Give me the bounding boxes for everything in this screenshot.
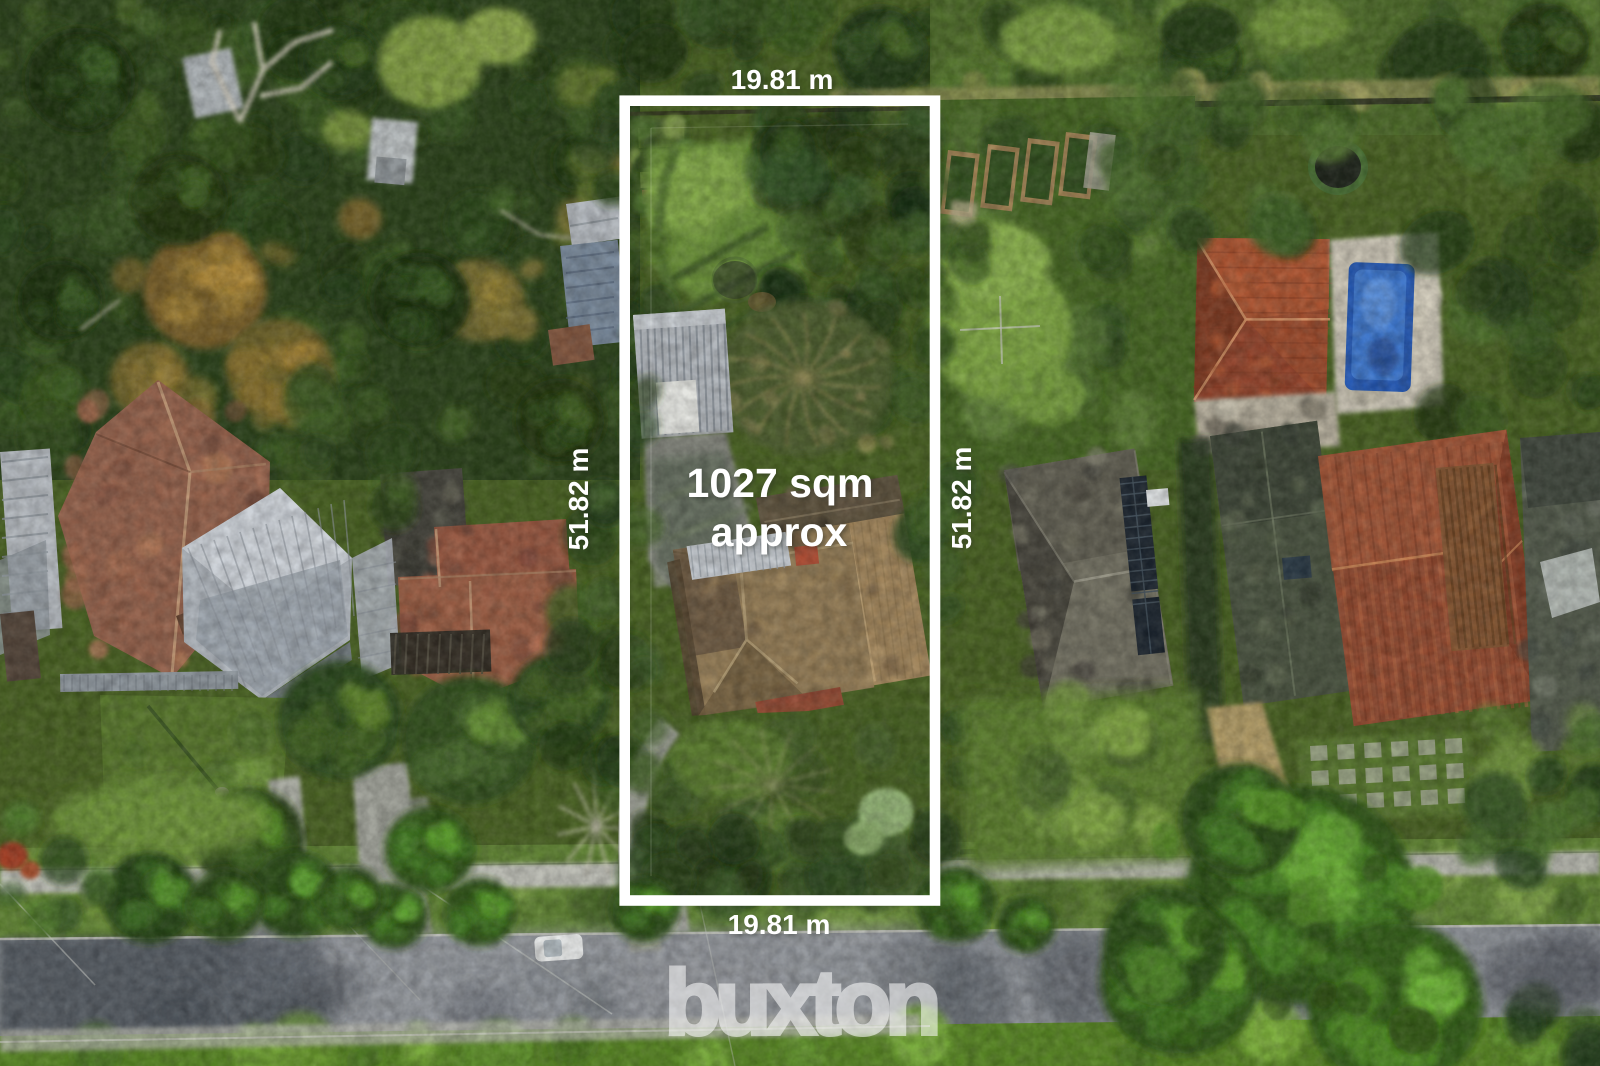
svg-text:51.82 m: 51.82 m [563,448,594,551]
svg-text:19.81 m: 19.81 m [728,909,831,940]
svg-text:approx: approx [711,509,848,555]
svg-text:1027 sqm: 1027 sqm [687,460,874,506]
svg-text:19.81 m: 19.81 m [731,64,834,95]
svg-text:buxton: buxton [665,952,936,1054]
svg-text:51.82 m: 51.82 m [946,447,977,550]
